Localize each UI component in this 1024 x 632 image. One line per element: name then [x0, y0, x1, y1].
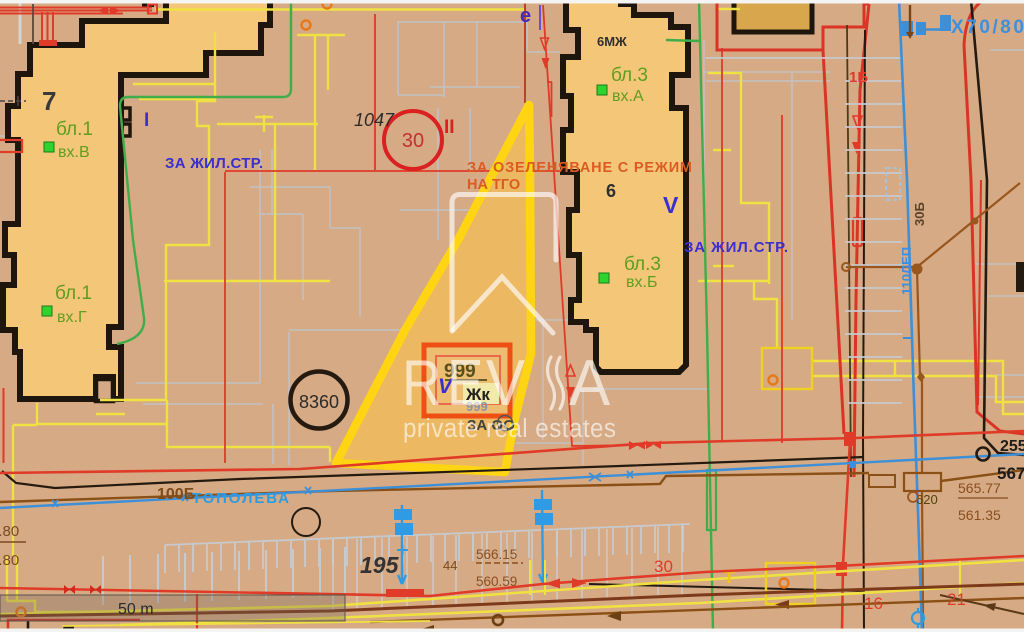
svg-text:620: 620 [916, 492, 938, 507]
svg-text:e: e [520, 5, 531, 27]
svg-text:вх.А: вх.А [612, 88, 644, 105]
svg-text:30: 30 [402, 130, 424, 152]
svg-text:560.59: 560.59 [476, 574, 517, 589]
svg-text:private real estates: private real estates [403, 414, 616, 443]
svg-text:1047: 1047 [354, 110, 395, 130]
svg-text:110ЛЕП: 110ЛЕП [899, 247, 914, 295]
svg-text:вх.В: вх.В [58, 144, 90, 161]
svg-text:195: 195 [360, 552, 400, 578]
svg-text:бл.1: бл.1 [55, 283, 92, 304]
svg-text:561.35: 561.35 [958, 507, 1001, 523]
svg-text:R: R [402, 347, 441, 420]
svg-text:ЗА ЖИЛ.СТР.: ЗА ЖИЛ.СТР. [684, 239, 788, 256]
svg-text:0.80: 0.80 [0, 552, 19, 569]
svg-text:1Б: 1Б [849, 69, 868, 86]
svg-text:V: V [663, 192, 679, 218]
svg-text:Х70/80: Х70/80 [951, 17, 1024, 38]
svg-text:A: A [569, 348, 611, 420]
svg-text:бл.1: бл.1 [56, 119, 93, 140]
svg-text:вх.Б: вх.Б [626, 274, 657, 291]
svg-text:I: I [144, 110, 149, 131]
svg-text:50 m: 50 m [118, 601, 154, 618]
svg-text:вх.Г: вх.Г [57, 309, 87, 326]
svg-text:30: 30 [654, 557, 673, 576]
svg-text:ЗА ОЗЕЛЕНЯВАНЕ С РЕЖИМ: ЗА ОЗЕЛЕНЯВАНЕ С РЕЖИМ [467, 160, 692, 176]
svg-text:565.77: 565.77 [958, 480, 1001, 496]
svg-text:21: 21 [947, 590, 966, 609]
svg-text:8360: 8360 [299, 392, 339, 412]
svg-text:567: 567 [997, 464, 1024, 483]
svg-text:E: E [447, 347, 483, 420]
svg-text:II: II [444, 117, 455, 138]
svg-text:V: V [486, 347, 525, 420]
svg-text:16: 16 [864, 594, 883, 613]
svg-text:НА ТГО: НА ТГО [467, 177, 520, 193]
svg-text:30Б: 30Б [912, 202, 927, 226]
svg-text:44: 44 [443, 558, 457, 573]
svg-text:бл.3: бл.3 [611, 65, 648, 86]
svg-text:7: 7 [42, 86, 56, 116]
svg-text:6: 6 [606, 181, 616, 201]
svg-text:ЗА ЖИЛ.СТР.: ЗА ЖИЛ.СТР. [165, 155, 263, 172]
svg-text:6МЖ: 6МЖ [597, 34, 627, 49]
svg-text:бл.3: бл.3 [624, 254, 661, 275]
svg-text:1.80: 1.80 [0, 523, 19, 540]
svg-text:566.15: 566.15 [476, 547, 517, 562]
svg-text:255: 255 [1000, 438, 1024, 455]
svg-text:100Б: 100Б [157, 486, 195, 503]
